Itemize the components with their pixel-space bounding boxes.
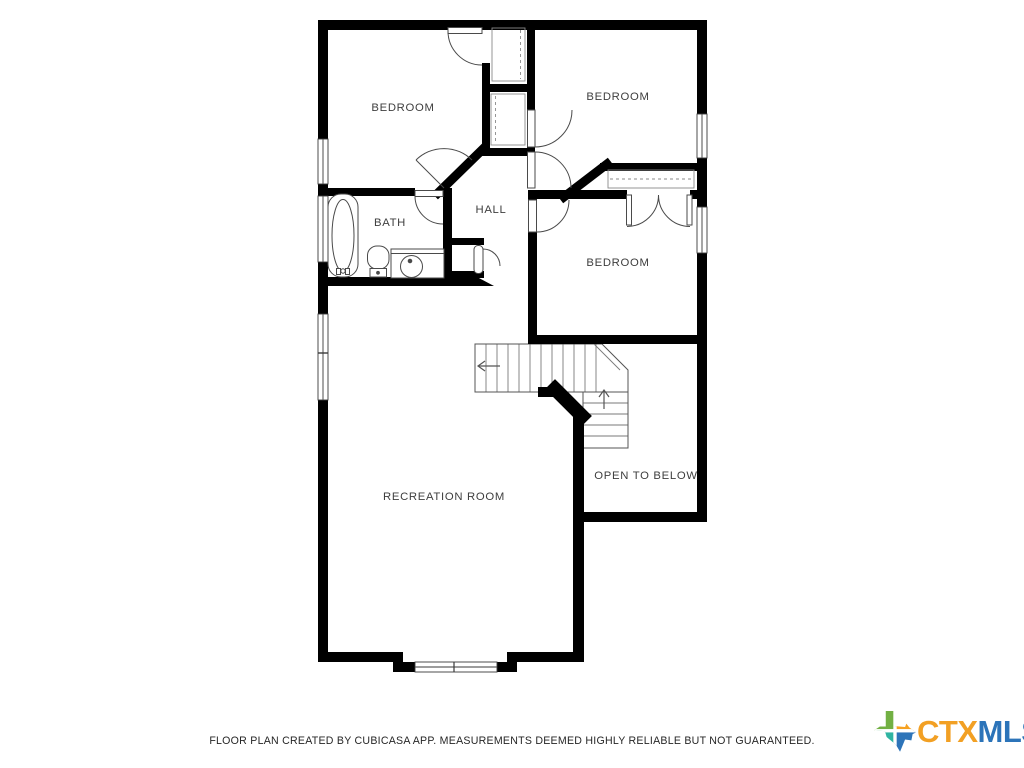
bathtub [328, 194, 358, 277]
room-label-recreation-room: RECREATION ROOM [383, 491, 505, 503]
window-recreation-left [318, 314, 328, 400]
room-label-hall: HALL [475, 204, 506, 216]
ctxmls-logo: CTXMLS [874, 711, 1024, 753]
room-label-bedroom-top-left: BEDROOM [371, 102, 434, 114]
doors [415, 28, 692, 274]
bath-fixtures [328, 194, 444, 278]
sink-vanity [391, 249, 444, 278]
door-bedroom2 [528, 152, 572, 188]
texas-state-icon [874, 711, 916, 753]
toilet [368, 246, 390, 277]
floor-plan-page: BEDROOM BEDROOM BEDROOM BATH HALL RECREA… [0, 0, 1024, 768]
window-bedroom3-right [697, 207, 707, 253]
window-bath-left [318, 196, 328, 262]
door-linen-closet [474, 246, 500, 274]
door-closet-bedroom2 [528, 110, 573, 147]
floor-plan-drawing: BEDROOM BEDROOM BEDROOM BATH HALL RECREA… [0, 0, 1024, 768]
door-double-closet-bedroom3 [627, 195, 693, 227]
logo-text-ctx: CTX [917, 711, 978, 753]
room-label-bath: BATH [374, 217, 406, 229]
window-bedroom2-right [697, 114, 707, 158]
disclaimer-text: FLOOR PLAN CREATED BY CUBICASA APP. MEAS… [0, 735, 1024, 747]
door-bedroom3 [529, 200, 570, 232]
room-label-bedroom-middle: BEDROOM [586, 257, 649, 269]
logo-text-mls: MLS [978, 711, 1024, 753]
door-closet-bedroom1 [448, 28, 482, 66]
window-recreation-bay [415, 662, 497, 672]
room-label-open-to-below: OPEN TO BELOW [594, 470, 697, 482]
door-bath [415, 191, 443, 225]
room-label-bedroom-top-right: BEDROOM [586, 91, 649, 103]
windows [318, 114, 707, 672]
window-bedroom1-left [318, 139, 328, 184]
